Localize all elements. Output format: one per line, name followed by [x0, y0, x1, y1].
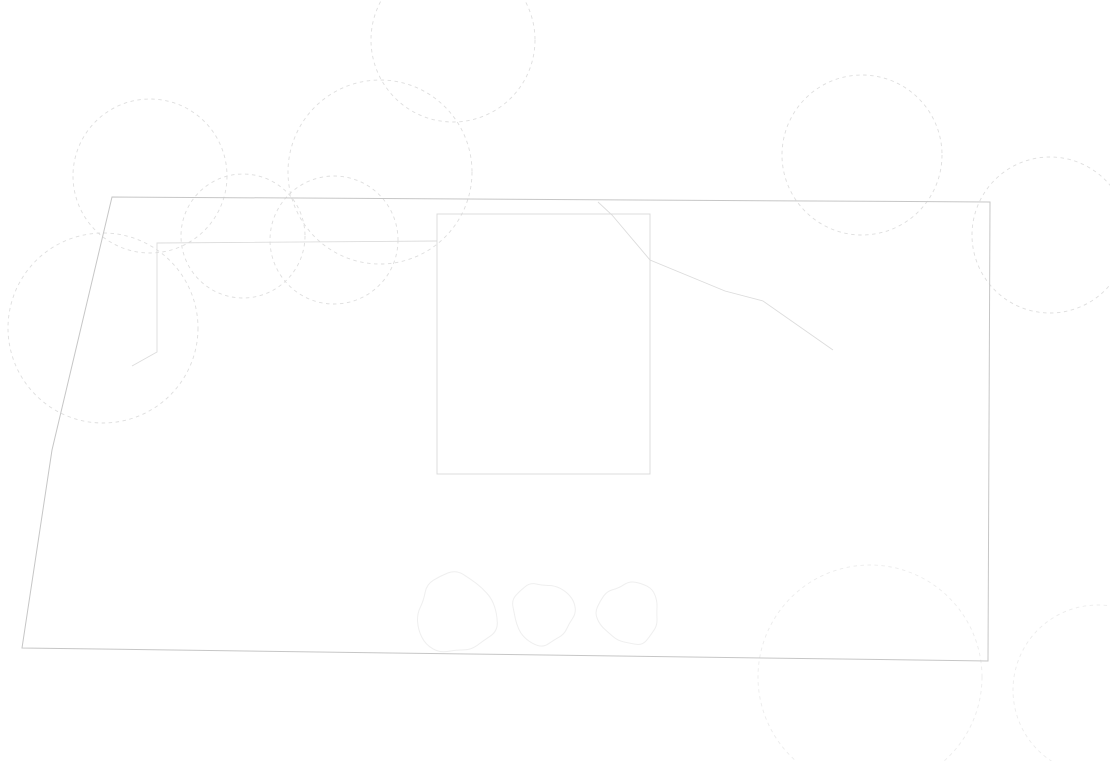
tree-existing-canopy — [972, 157, 1110, 313]
tree-existing-faint-canopy — [758, 565, 982, 761]
tree-planted-faint-canopy — [596, 582, 657, 645]
tree-existing-faint-canopy — [1013, 605, 1110, 761]
tree-planted-faint-canopy — [418, 572, 498, 652]
tree-existing-canopy — [782, 75, 942, 235]
tree-existing-canopy — [8, 233, 198, 423]
site-plan-page — [0, 0, 1110, 761]
site-boundary — [22, 197, 990, 661]
site-plan-canvas — [0, 0, 1110, 761]
tree-existing-canopy — [181, 174, 305, 298]
tree-existing-canopy — [73, 99, 227, 253]
tree-existing-canopy — [288, 80, 472, 264]
yard-outline — [437, 214, 650, 474]
setback-line — [598, 202, 833, 350]
setback-line — [132, 241, 437, 366]
tree-existing-canopy — [371, 0, 535, 122]
site-layer — [22, 197, 990, 661]
tree-planted-faint-canopy — [513, 584, 576, 646]
trees-layer — [8, 0, 1110, 761]
